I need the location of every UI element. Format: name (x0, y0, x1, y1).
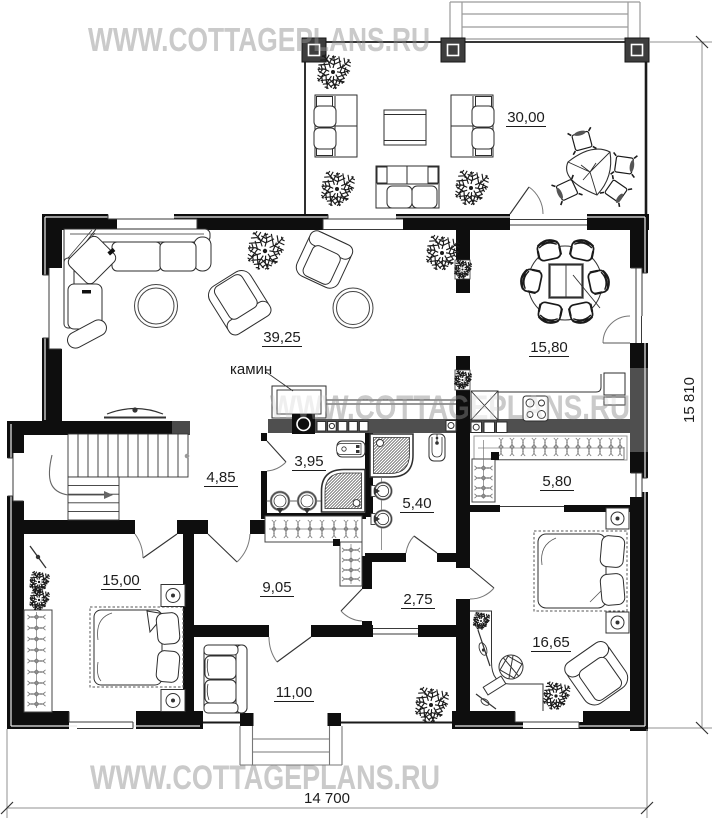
svg-text:5,40: 5,40 (402, 495, 431, 512)
svg-text:16,65: 16,65 (532, 634, 570, 651)
svg-text:WWW.COTTAGEPLANS.RU: WWW.COTTAGEPLANS.RU (88, 21, 430, 58)
svg-text:4,85: 4,85 (206, 469, 235, 486)
svg-text:2,75: 2,75 (403, 591, 432, 608)
svg-text:30,00: 30,00 (507, 109, 545, 126)
svg-text:39,25: 39,25 (263, 329, 301, 346)
svg-text:WWW.COTTAGEPLANS.RU: WWW.COTTAGEPLANS.RU (270, 389, 630, 427)
svg-text:3,95: 3,95 (294, 453, 323, 470)
svg-text:14 700: 14 700 (304, 790, 350, 807)
svg-text:5,80: 5,80 (542, 473, 571, 490)
svg-text:11,00: 11,00 (276, 684, 312, 701)
svg-text:15,00: 15,00 (102, 572, 140, 589)
svg-text:15 810: 15 810 (681, 377, 698, 423)
svg-text:камин: камин (230, 361, 272, 378)
svg-text:WWW.COTTAGEPLANS.RU: WWW.COTTAGEPLANS.RU (90, 759, 440, 797)
svg-text:15,80: 15,80 (530, 339, 568, 356)
svg-text:9,05: 9,05 (262, 579, 291, 596)
